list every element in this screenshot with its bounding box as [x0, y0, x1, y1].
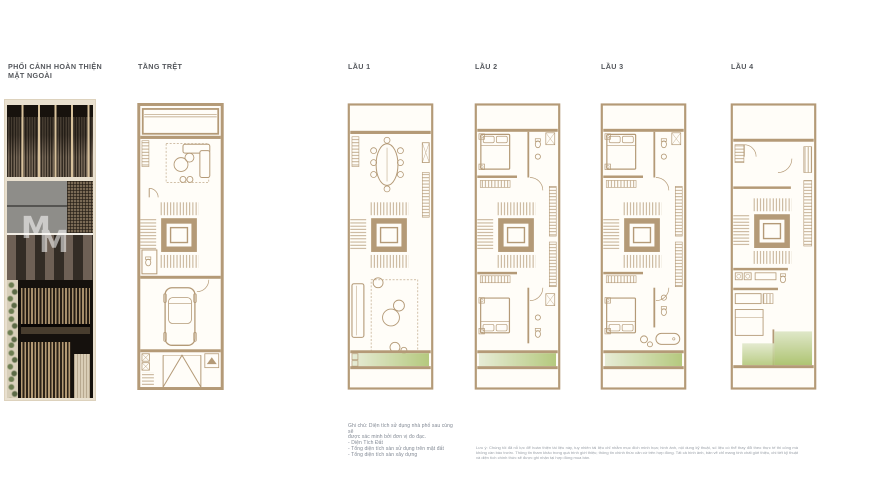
floor-plan-panel-lau-1 — [347, 103, 434, 390]
exterior-perspective-render: M M — [5, 100, 95, 400]
facade-mesh-screen — [67, 181, 93, 233]
floor-plan-drawing-lau-4 — [730, 103, 817, 390]
panel-title-lau-4: LẦU 4 — [731, 62, 754, 71]
facade-lower-band — [7, 280, 93, 398]
brochure-page: { "colors": { "plan_line": "#b49a77", "p… — [0, 0, 876, 478]
panel-title-lau-1: LẦU 1 — [348, 62, 371, 71]
note-line: - Tổng diện tích sàn xây dựng — [348, 453, 458, 459]
floor-plan-drawing-tang-tret — [137, 103, 224, 390]
panel-title-tang-tret: TẦNG TRỆT — [138, 62, 182, 71]
floor-plan-drawing-lau-2 — [474, 103, 561, 390]
facade-lattice-band — [7, 105, 93, 181]
floor-plan-drawing-lau-1 — [347, 103, 434, 390]
title-line-1: PHỐI CẢNH HOÀN THIỆN — [8, 62, 102, 71]
foliage-strip — [7, 280, 18, 398]
wall-patch — [74, 354, 90, 398]
floor-plan-panel-tang-tret — [137, 103, 224, 390]
floor-plan-drawing-lau-3 — [600, 103, 687, 390]
legal-disclaimer: Lưu ý: Chúng tôi đã nỗ lực để hoàn thiện… — [476, 445, 798, 460]
facade-glass-band — [7, 181, 93, 233]
floor-plan-panel-lau-3 — [600, 103, 687, 390]
title-line-2: MẶT NGOÀI — [8, 71, 52, 80]
wood-screen-upper — [21, 288, 90, 327]
panel-title-lau-2: LẦU 2 — [475, 62, 498, 71]
floor-plan-panel-lau-2 — [474, 103, 561, 390]
wood-screen-lower — [21, 342, 71, 398]
plan-notes: Ghi chú: Diện tích sử dụng nhà phố sau c… — [348, 424, 458, 458]
facade-slat-band — [7, 233, 93, 282]
panel-title-lau-3: LẦU 3 — [601, 62, 624, 71]
floor-plan-panel-lau-4 — [730, 103, 817, 390]
panel-title-perspective: PHỐI CẢNH HOÀN THIỆNMẶT NGOÀI — [8, 62, 128, 80]
